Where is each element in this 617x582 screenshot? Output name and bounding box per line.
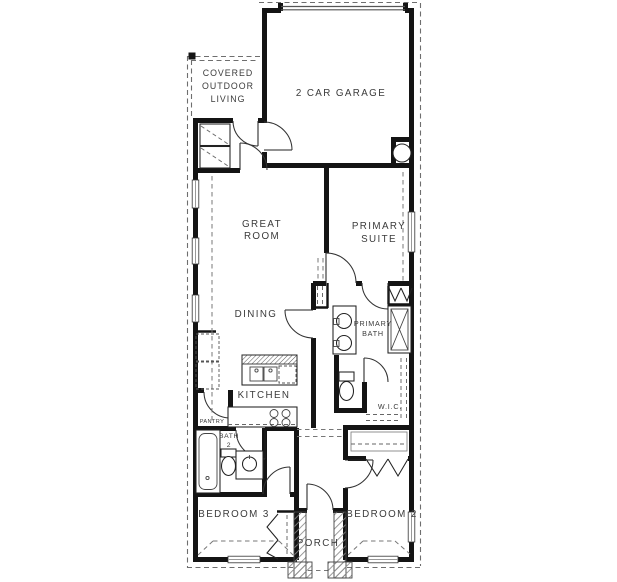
linen-closet-shelves bbox=[318, 286, 323, 306]
bath-closet-bifold bbox=[389, 288, 412, 301]
label-primary-bath: PRIMARY bbox=[354, 319, 392, 328]
porch-pier-left bbox=[288, 562, 312, 578]
bedroom3-closet-bifold bbox=[267, 514, 278, 559]
label-primary-bath: BATH bbox=[362, 329, 384, 338]
label-covered-outdoor-living: LIVING bbox=[211, 94, 246, 104]
label-dining: DINING bbox=[235, 309, 278, 320]
floor-plan-drawing: COVERED OUTDOOR LIVING 2 CAR GARAGE GREA… bbox=[0, 0, 617, 582]
label-bedroom3: BEDROOM 3 bbox=[198, 509, 269, 520]
label-bath2: BATH bbox=[219, 433, 239, 440]
bedroom3-closet bbox=[267, 514, 287, 559]
label-kitchen: KITCHEN bbox=[238, 390, 291, 401]
label-primary-suite: PRIMARY bbox=[352, 221, 406, 232]
bedroom2-closet bbox=[351, 432, 408, 476]
label-wic: W.I.C. bbox=[378, 402, 402, 411]
primary-toilet-tank bbox=[339, 372, 354, 381]
water-heater bbox=[393, 144, 411, 162]
label-porch: PORCH bbox=[297, 538, 339, 549]
island-bar-top bbox=[242, 355, 297, 364]
bath2-toilet-tank bbox=[221, 449, 236, 457]
label-pantry: PANTRY bbox=[200, 419, 225, 425]
label-great-room: GREAT bbox=[242, 219, 282, 230]
laundry-area bbox=[200, 124, 230, 168]
wic-shelves bbox=[366, 358, 407, 421]
label-garage: 2 CAR GARAGE bbox=[296, 88, 386, 99]
bath2-sink bbox=[243, 457, 257, 471]
label-bedroom2: BEDROOM 2 bbox=[346, 509, 417, 520]
label-bath2: 2 bbox=[227, 442, 231, 449]
label-covered-outdoor-living: OUTDOOR bbox=[202, 81, 254, 91]
patio-post bbox=[189, 53, 196, 60]
garage-door bbox=[281, 7, 405, 10]
kitchen-cabinets bbox=[196, 362, 219, 389]
label-great-room: ROOM bbox=[244, 231, 280, 242]
label-covered-outdoor-living: COVERED bbox=[203, 68, 254, 78]
kitchen-fixtures bbox=[196, 334, 297, 427]
refrigerator bbox=[196, 334, 219, 361]
bathtub bbox=[196, 430, 220, 493]
label-primary-suite: SUITE bbox=[361, 234, 397, 245]
porch-pier-right bbox=[328, 562, 352, 578]
bath2-toilet bbox=[222, 457, 236, 476]
floor-plan: COVERED OUTDOOR LIVING 2 CAR GARAGE GREA… bbox=[0, 0, 617, 582]
primary-toilet bbox=[340, 382, 354, 401]
